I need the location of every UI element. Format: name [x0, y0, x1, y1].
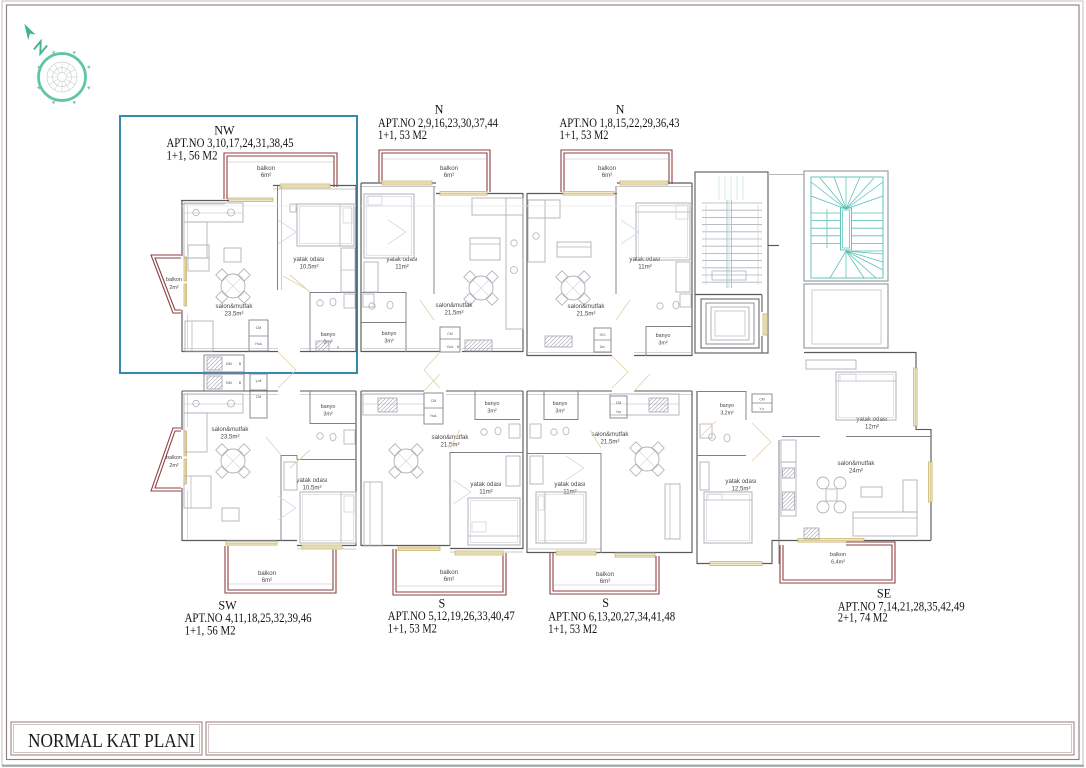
svg-text:CM: CM	[447, 332, 453, 336]
svg-text:2m²: 2m²	[600, 345, 606, 349]
svg-text:N: N	[435, 102, 444, 116]
svg-text:yatak odası: yatak odası	[293, 256, 324, 263]
svg-text:YsoL: YsoL	[430, 414, 437, 418]
svg-text:21,5m²: 21,5m²	[577, 311, 596, 318]
svg-text:1+1, 56 M2: 1+1, 56 M2	[185, 624, 236, 638]
svg-text:2m²: 2m²	[169, 463, 178, 469]
svg-text:B: B	[239, 362, 242, 366]
svg-text:salon&mutfak: salon&mutfak	[212, 426, 250, 433]
svg-text:yatak odası: yatak odası	[386, 256, 417, 263]
svg-text:balkon: balkon	[598, 165, 616, 172]
svg-text:BM: BM	[226, 381, 231, 385]
svg-text:YsoL: YsoL	[446, 345, 453, 349]
svg-text:banyo: banyo	[720, 403, 734, 409]
svg-text:balkon: balkon	[166, 455, 182, 461]
svg-text:B: B	[337, 346, 340, 350]
svg-text:S: S	[602, 596, 609, 610]
svg-text:11m²: 11m²	[638, 264, 651, 271]
svg-text:2m²: 2m²	[169, 285, 178, 291]
svg-text:3m²: 3m²	[658, 341, 667, 347]
svg-text:3,2m²: 3,2m²	[720, 411, 734, 417]
svg-text:banyo: banyo	[382, 331, 397, 337]
svg-text:6m²: 6m²	[261, 172, 272, 179]
svg-text:SE: SE	[877, 587, 891, 601]
svg-text:balkon: balkon	[257, 165, 275, 172]
svg-text:CM: CM	[256, 326, 262, 330]
svg-text:21,5m²: 21,5m²	[445, 310, 464, 317]
svg-text:Yso: Yso	[616, 410, 622, 414]
svg-text:6m²: 6m²	[444, 172, 455, 179]
svg-text:3m²: 3m²	[487, 409, 496, 415]
svg-text:salon&mutfak: salon&mutfak	[216, 303, 254, 310]
svg-text:6m²: 6m²	[600, 578, 611, 585]
svg-text:CM: CM	[616, 401, 622, 405]
svg-text:Y.o.: Y.o.	[759, 407, 764, 411]
svg-text:NORMAL KAT PLANI: NORMAL KAT PLANI	[28, 730, 195, 752]
svg-text:yatak odası: yatak odası	[470, 481, 501, 488]
svg-text:11m²: 11m²	[479, 489, 492, 496]
svg-text:1+1, 53 M2: 1+1, 53 M2	[378, 128, 427, 142]
svg-text:balkon: balkon	[830, 552, 846, 558]
svg-text:23,5m²: 23,5m²	[225, 311, 244, 318]
svg-text:10,5m²: 10,5m²	[303, 485, 322, 492]
svg-text:6m²: 6m²	[444, 576, 455, 583]
svg-text:YsoL: YsoL	[255, 342, 263, 346]
svg-text:11m²: 11m²	[395, 264, 408, 271]
svg-text:yatak odası: yatak odası	[296, 477, 327, 484]
svg-text:CM: CM	[431, 399, 437, 403]
svg-text:balkon: balkon	[440, 569, 458, 576]
svg-text:balkon: balkon	[166, 277, 182, 283]
svg-text:balkon: balkon	[440, 165, 458, 172]
svg-text:yatak odası: yatak odası	[725, 478, 756, 485]
svg-text:1+1, 53 M2: 1+1, 53 M2	[548, 622, 597, 636]
svg-text:B: B	[239, 381, 242, 385]
svg-text:1+1, 53 M2: 1+1, 53 M2	[388, 622, 437, 636]
svg-text:balkon: balkon	[596, 571, 614, 578]
svg-text:10,5m²: 10,5m²	[300, 264, 319, 271]
svg-text:banyo: banyo	[321, 404, 336, 410]
svg-text:salon&mutfak: salon&mutfak	[432, 434, 470, 441]
svg-text:salon&mutfak: salon&mutfak	[838, 460, 876, 467]
svg-text:24m²: 24m²	[849, 468, 863, 475]
svg-text:banyo: banyo	[321, 332, 336, 338]
svg-text:B: B	[457, 345, 460, 349]
svg-text:HCl: HCl	[600, 333, 606, 337]
svg-text:12m²: 12m²	[865, 424, 879, 431]
svg-text:banyo: banyo	[485, 401, 500, 407]
svg-text:3m²: 3m²	[384, 339, 393, 345]
svg-text:3m²: 3m²	[555, 409, 564, 415]
svg-text:y.off: y.off	[256, 379, 262, 383]
svg-text:yatak odası: yatak odası	[554, 481, 585, 488]
svg-text:N: N	[616, 102, 625, 116]
svg-text:salon&mutfak: salon&mutfak	[592, 431, 630, 438]
svg-text:2+1, 74 M2: 2+1, 74 M2	[838, 611, 888, 625]
svg-text:banyo: banyo	[553, 401, 568, 407]
svg-text:balkon: balkon	[258, 570, 276, 577]
svg-text:CM: CM	[759, 398, 764, 402]
svg-text:6,4m²: 6,4m²	[831, 560, 845, 566]
svg-text:12,5m²: 12,5m²	[732, 486, 751, 493]
svg-text:6m²: 6m²	[602, 172, 613, 179]
svg-text:3m²: 3m²	[323, 412, 332, 418]
svg-text:salon&mutfak: salon&mutfak	[436, 302, 474, 309]
svg-text:23,5m²: 23,5m²	[221, 434, 240, 441]
svg-text:1+1, 56 M2: 1+1, 56 M2	[167, 148, 218, 162]
svg-text:salon&mutfak: salon&mutfak	[568, 303, 606, 310]
svg-text:21,5m²: 21,5m²	[601, 439, 620, 446]
svg-text:6m²: 6m²	[262, 577, 273, 584]
svg-text:1+1, 53 M2: 1+1, 53 M2	[560, 128, 609, 142]
svg-text:CM: CM	[256, 395, 262, 399]
svg-text:BM: BM	[226, 362, 231, 366]
svg-text:banyo: banyo	[656, 333, 671, 339]
